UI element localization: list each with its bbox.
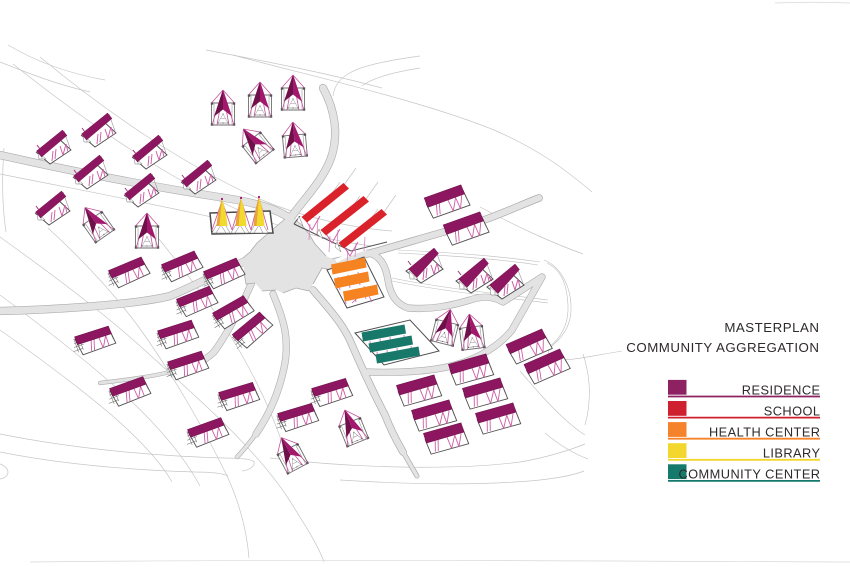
svg-text:COMMUNITY CENTER: COMMUNITY CENTER xyxy=(678,467,820,482)
svg-text:COMMUNITY AGGREGATION: COMMUNITY AGGREGATION xyxy=(626,340,819,355)
svg-text:MASTERPLAN: MASTERPLAN xyxy=(724,320,819,335)
svg-text:SCHOOL: SCHOOL xyxy=(764,403,821,418)
svg-text:LIBRARY: LIBRARY xyxy=(763,446,821,461)
svg-text:HEALTH CENTER: HEALTH CENTER xyxy=(709,425,821,440)
svg-text:RESIDENCE: RESIDENCE xyxy=(742,382,821,397)
